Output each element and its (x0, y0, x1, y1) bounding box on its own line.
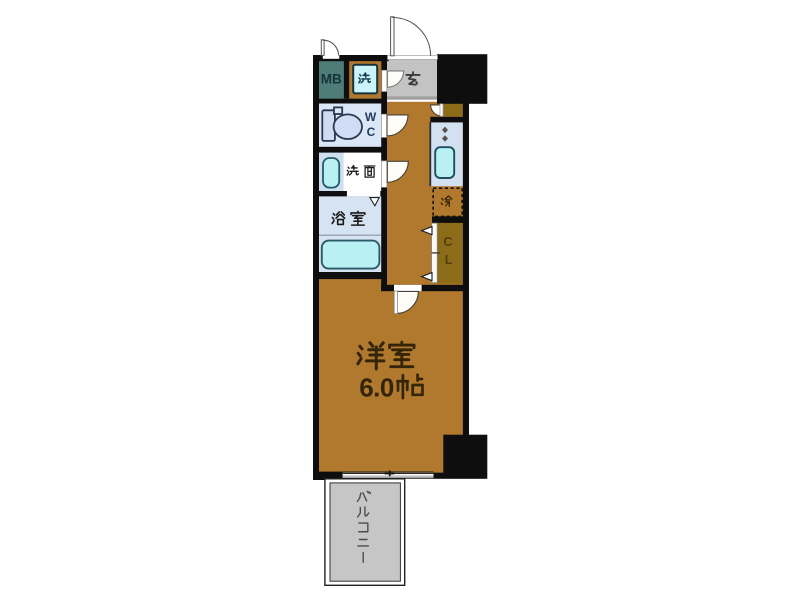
svg-text:L: L (445, 253, 453, 267)
svg-text:6.0: 6.0 (359, 373, 394, 403)
svg-text:C: C (367, 125, 376, 139)
svg-text:C: C (443, 235, 452, 249)
svg-text:W: W (365, 110, 377, 124)
svg-text:MB: MB (321, 72, 342, 87)
